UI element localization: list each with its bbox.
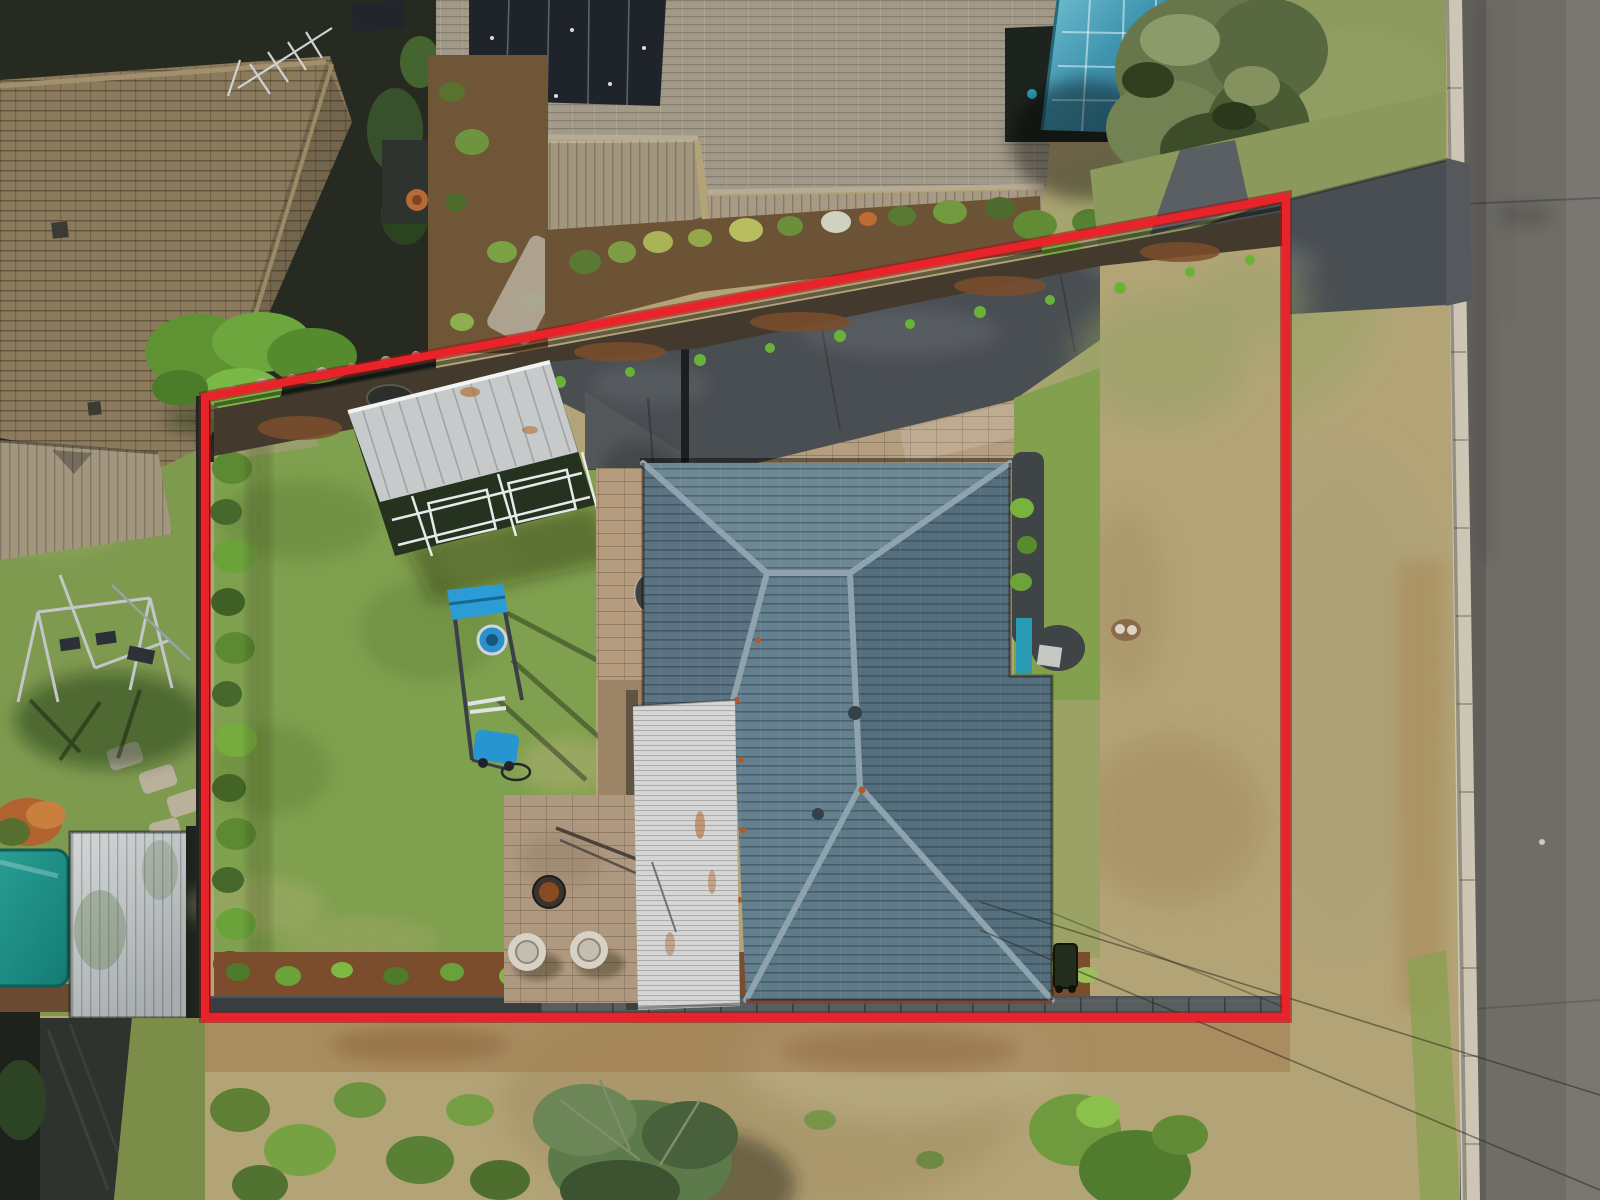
side-lawn-lower (1052, 700, 1100, 958)
blue-machine (472, 729, 520, 765)
driveway-patch (590, 365, 710, 405)
roof-vent (87, 401, 101, 415)
roof-vent (812, 808, 824, 820)
ac-unit (1037, 645, 1063, 668)
lawn-dry-patch (520, 737, 610, 793)
shed-patina (142, 840, 178, 900)
tyre-mark (1478, 0, 1492, 560)
bucket-centre (486, 634, 498, 646)
driveway-kerb-crossing (1446, 158, 1472, 306)
shed-patina (74, 890, 126, 970)
garden-shed (70, 826, 204, 1022)
dry-brown-patch (1075, 735, 1265, 905)
dirt-blotch (330, 1027, 510, 1063)
swing-set-shadow (15, 672, 205, 768)
side-bush (1010, 573, 1032, 591)
terracotta-pot-centre (412, 195, 422, 205)
road-light-edge (1566, 0, 1600, 1200)
small-solar-panel (351, 0, 405, 32)
verge-dirt-streak (1398, 560, 1444, 1010)
rust-smudge (460, 387, 480, 397)
roof-vent (51, 221, 69, 239)
teal-item (1016, 618, 1032, 674)
fire-pit-patio (504, 795, 646, 1003)
side-bush (1010, 498, 1034, 518)
rust-streak (708, 870, 716, 894)
pergola-corrugation (633, 700, 740, 1010)
machine-wheel (478, 758, 488, 768)
fire-pit-bowl (539, 882, 559, 902)
pool-edging (0, 984, 80, 1012)
rust-streak (695, 811, 705, 839)
aerial-photo (0, 0, 1600, 1200)
side-bush (1017, 536, 1037, 554)
dirt-blotch (780, 1030, 1020, 1070)
roof-vent (848, 706, 862, 720)
patio-pergola-roof (633, 700, 740, 1010)
road-marking-dot (1539, 839, 1545, 845)
rust-smudge (522, 426, 538, 434)
rust-streak (665, 932, 675, 956)
clothesline-pole (681, 334, 689, 462)
hedge-shadow (252, 420, 266, 980)
main-house (630, 450, 1085, 1010)
tyre-mark (1502, 0, 1511, 320)
road-stain (1497, 203, 1553, 227)
orange-flower-bush (26, 801, 66, 829)
manhole-cover (1111, 619, 1141, 641)
